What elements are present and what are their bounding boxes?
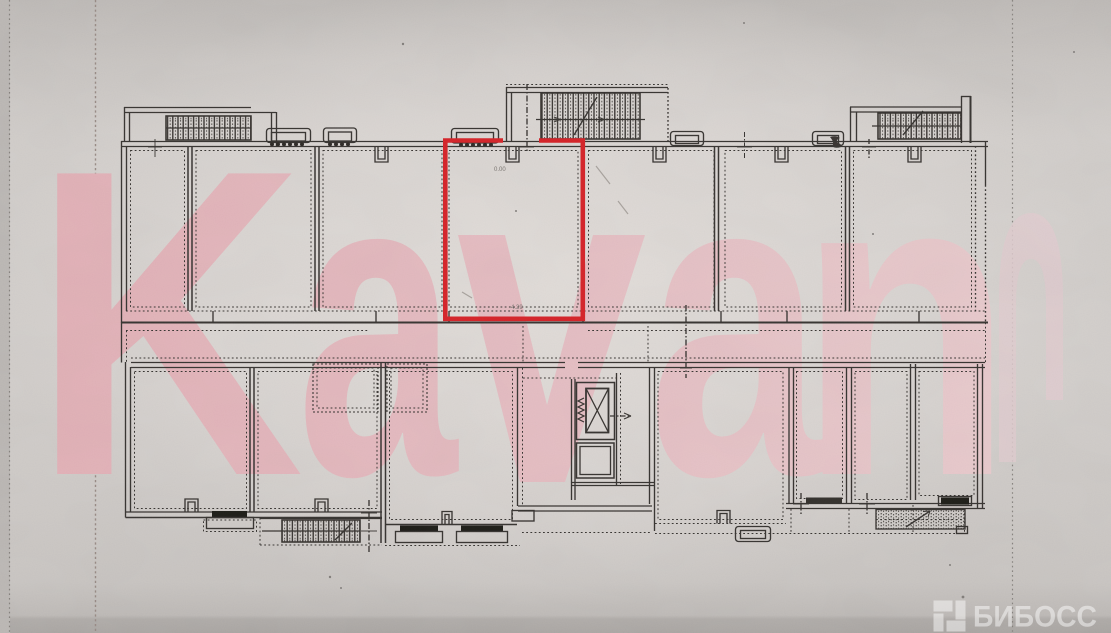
svg-text:БИБОСС: БИБОСС bbox=[973, 601, 1097, 633]
